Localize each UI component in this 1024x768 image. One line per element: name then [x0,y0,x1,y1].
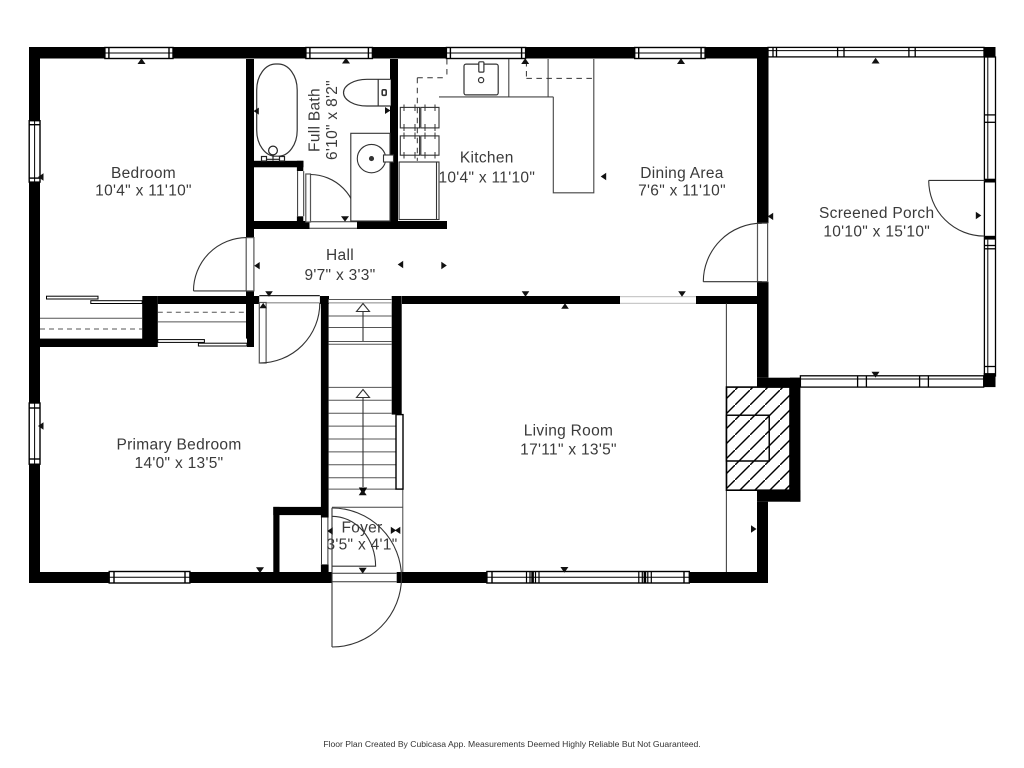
svg-text:9'7" x 3'3": 9'7" x 3'3" [304,267,375,284]
svg-text:Full Bath: Full Bath [307,88,324,152]
svg-text:Dining Area: Dining Area [640,165,724,182]
svg-text:Floor Plan Created By Cubicasa: Floor Plan Created By Cubicasa App. Meas… [323,739,700,749]
svg-text:Primary Bedroom: Primary Bedroom [116,437,241,454]
svg-text:6'10" x 8'2": 6'10" x 8'2" [324,80,341,160]
svg-text:Bedroom: Bedroom [111,165,176,182]
svg-text:7'6" x 11'10": 7'6" x 11'10" [638,183,726,200]
svg-text:Kitchen: Kitchen [460,150,514,167]
svg-text:17'11" x 13'5": 17'11" x 13'5" [520,442,617,459]
svg-text:10'4" x 11'10": 10'4" x 11'10" [438,170,535,187]
svg-text:3'5" x 4'1": 3'5" x 4'1" [326,536,397,553]
svg-text:14'0" x 13'5": 14'0" x 13'5" [135,455,224,472]
svg-text:10'4" x 11'10": 10'4" x 11'10" [95,183,192,200]
svg-text:Screened Porch: Screened Porch [819,205,934,222]
svg-text:10'10" x 15'10": 10'10" x 15'10" [823,224,930,241]
svg-text:Living Room: Living Room [524,423,613,440]
svg-text:Hall: Hall [326,247,354,264]
svg-text:Foyer: Foyer [341,519,382,536]
